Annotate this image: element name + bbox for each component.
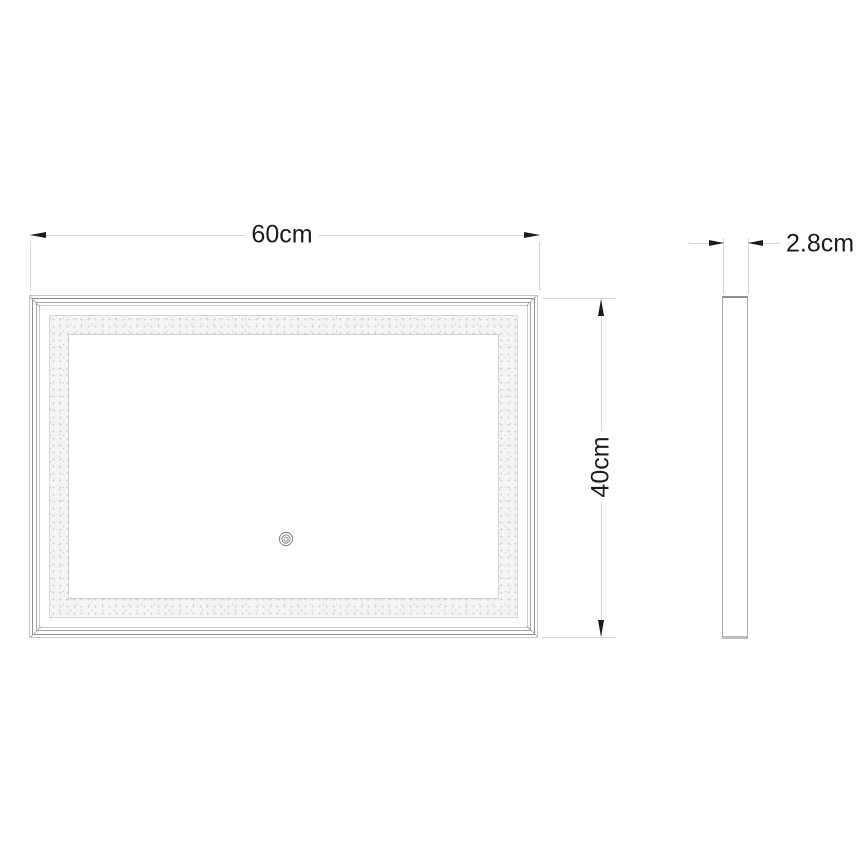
- extension-line-bottom: [542, 637, 616, 638]
- arrowhead-inward-right-icon: [709, 240, 724, 246]
- arrowhead-down-icon: [598, 620, 604, 637]
- arrowhead-right-icon: [524, 232, 540, 238]
- arrowhead-inward-left-icon: [748, 240, 763, 246]
- mirror-surface: [68, 334, 499, 599]
- extension-line-depth-right: [748, 238, 749, 294]
- arrowhead-up-icon: [598, 299, 604, 316]
- extension-line-right: [539, 242, 540, 291]
- extension-line-top: [542, 298, 616, 299]
- mirror-front-view: [29, 295, 538, 638]
- power-touch-icon: [278, 531, 294, 547]
- depth-dimension-label: 2.8cm: [780, 230, 860, 258]
- extension-line-depth-left: [723, 238, 724, 294]
- height-dimension-label: 40cm: [587, 430, 615, 503]
- technical-drawing-canvas: 60cm 40cm 2.8cm: [0, 0, 868, 868]
- mirror-side-view: [722, 296, 748, 639]
- extension-line-left: [30, 242, 31, 291]
- width-dimension-label: 60cm: [245, 221, 318, 249]
- arrowhead-left-icon: [30, 232, 46, 238]
